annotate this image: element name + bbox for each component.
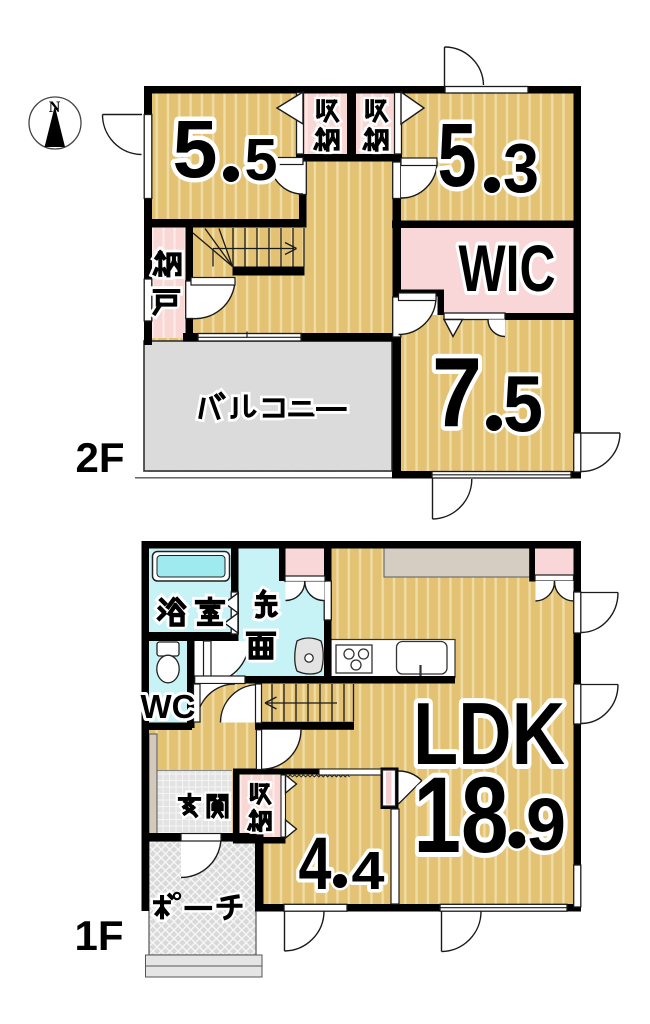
svg-text:18: 18: [414, 754, 509, 875]
svg-text:2F: 2F: [75, 434, 124, 481]
svg-text:5: 5: [438, 106, 477, 206]
svg-text:4: 4: [299, 822, 332, 905]
svg-text:WIC: WIC: [459, 231, 556, 305]
svg-text:1F: 1F: [74, 912, 123, 959]
svg-text:WC: WC: [141, 688, 196, 725]
svg-text:4: 4: [352, 841, 385, 901]
svg-text:5: 5: [173, 104, 218, 195]
svg-text:3: 3: [503, 129, 539, 207]
svg-text:5: 5: [503, 359, 543, 448]
svg-text:5: 5: [245, 127, 278, 193]
svg-text:9: 9: [526, 783, 566, 866]
svg-text:7: 7: [432, 337, 482, 447]
